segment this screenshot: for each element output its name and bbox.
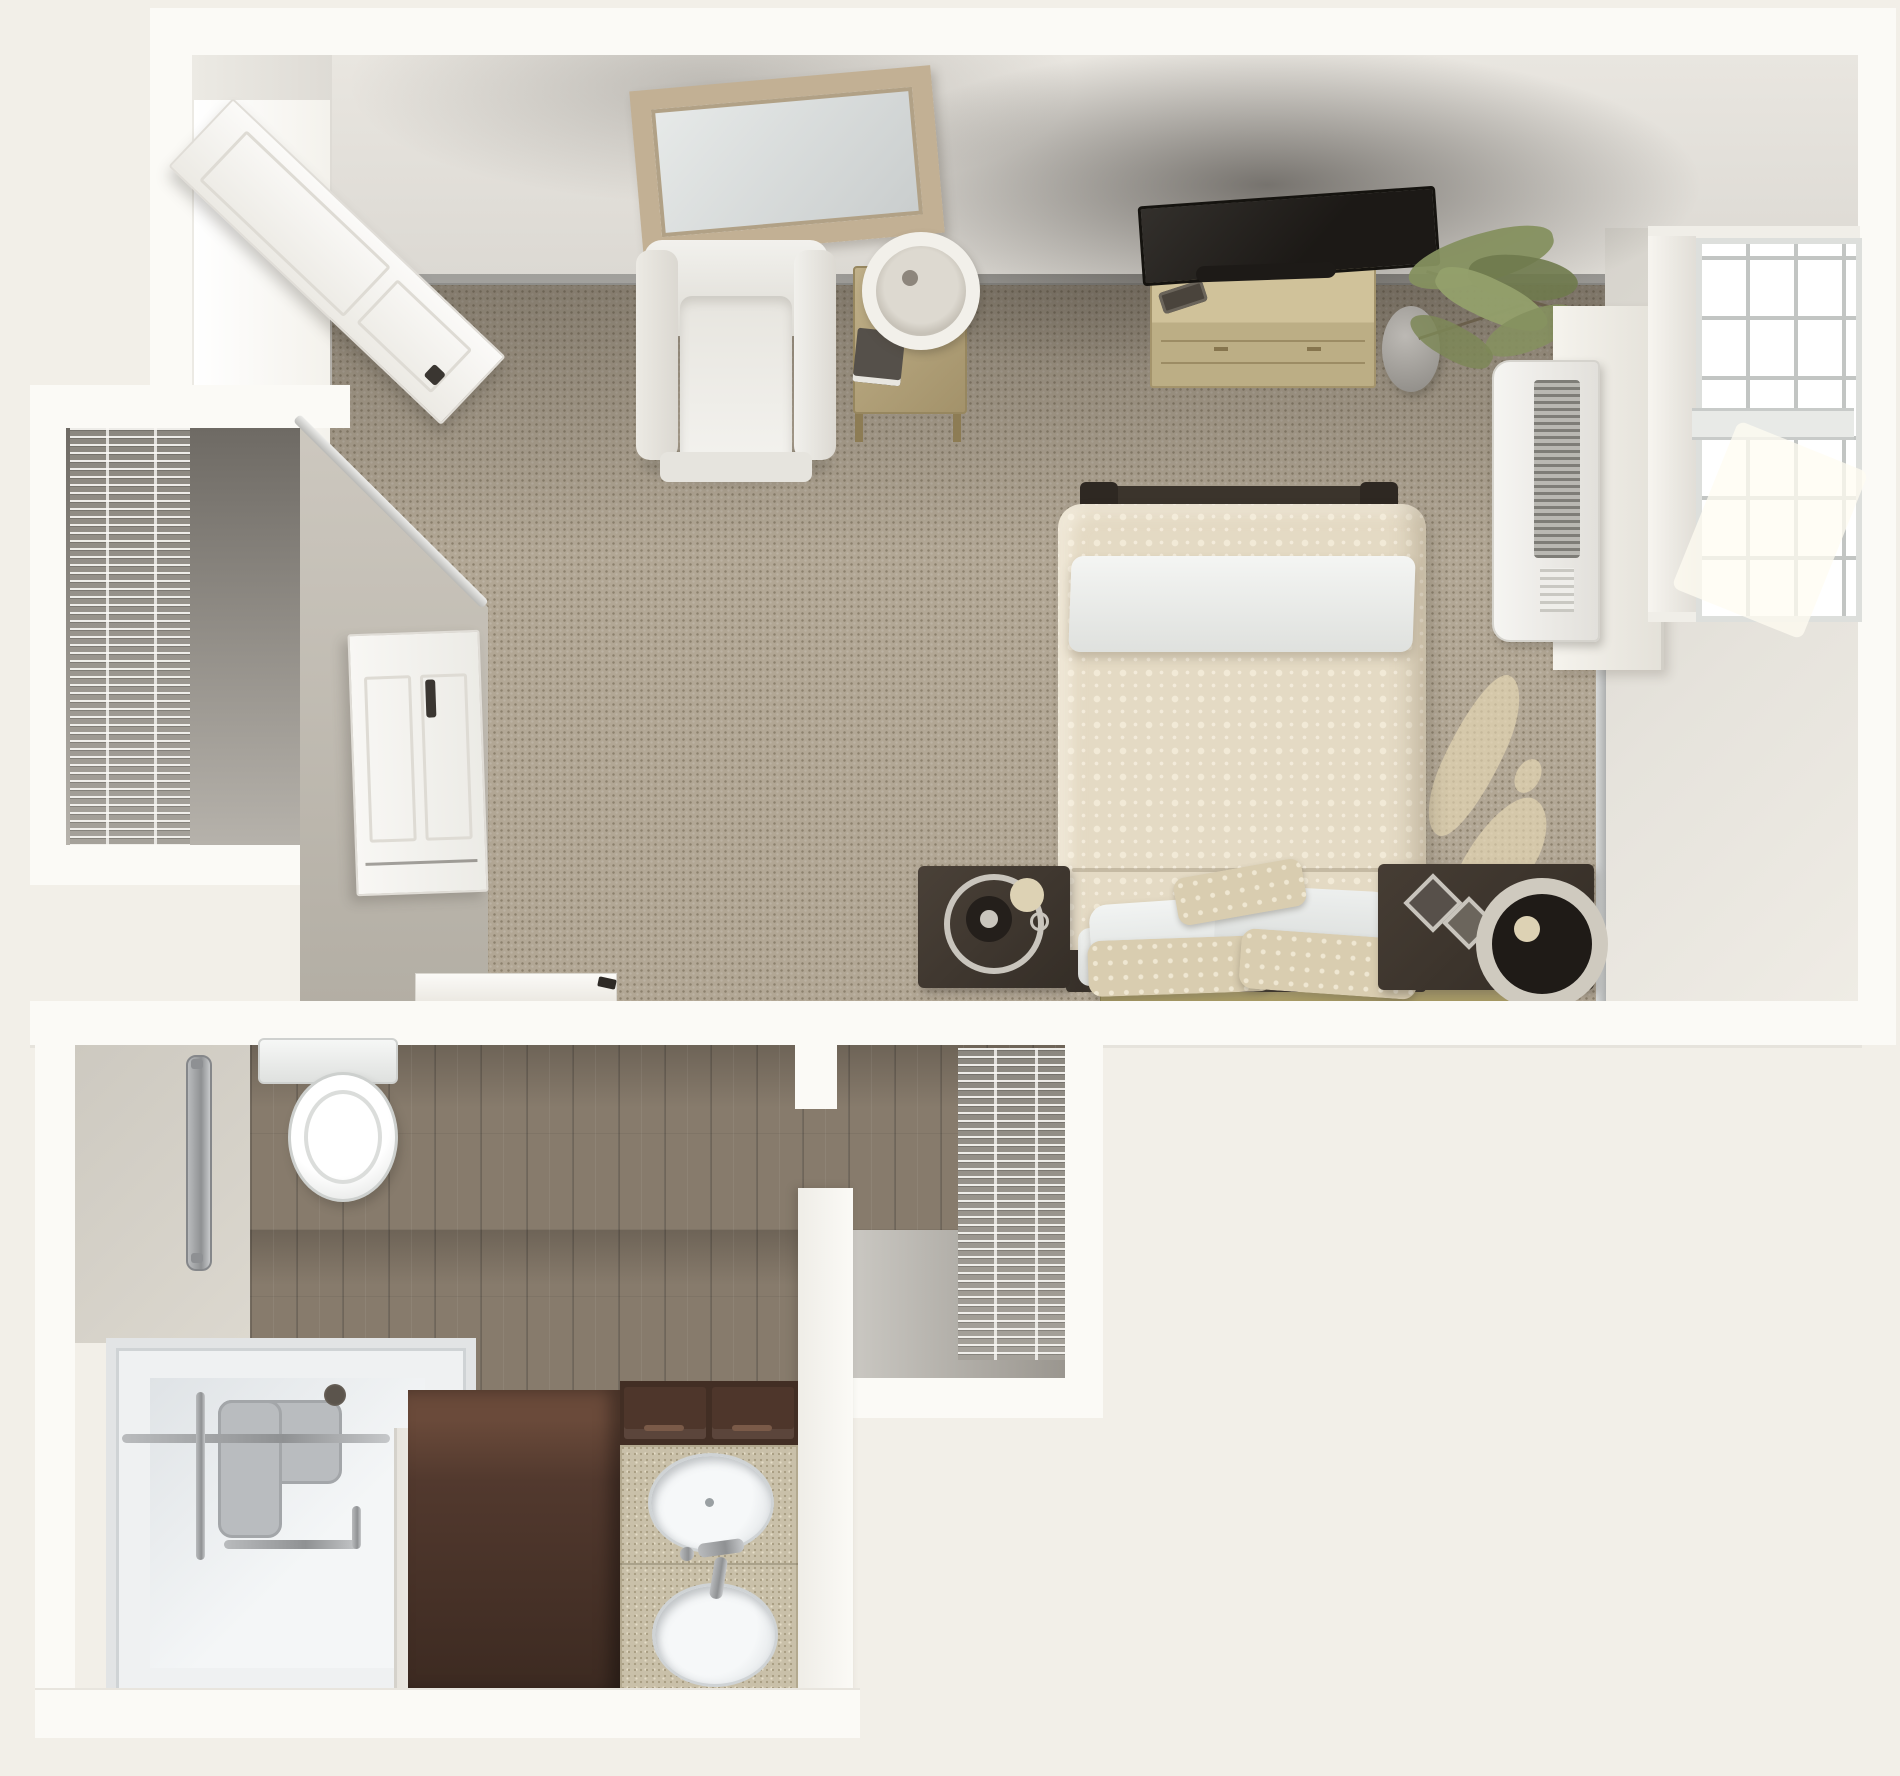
armchair-arm-left <box>636 250 678 460</box>
shower-drain-icon <box>324 1384 346 1406</box>
drawer-handle-icon <box>732 1425 772 1431</box>
grab-bar-standoff <box>191 1059 203 1069</box>
wire-rail <box>1035 1048 1038 1360</box>
table-lamp <box>862 232 980 350</box>
shower-grab-bar-horizontal <box>122 1434 390 1443</box>
outer-wall-right <box>1858 8 1896 1045</box>
ring-cream-disc-icon <box>1010 878 1044 912</box>
grab-bar-standoff <box>191 1253 203 1263</box>
nightstand-left <box>918 866 1070 988</box>
bathroom-bottom-wall <box>35 1688 860 1738</box>
ac-wall-unit <box>1492 360 1600 642</box>
grab-bar-vertical <box>186 1055 212 1271</box>
walkin-right-wall <box>1065 1045 1103 1418</box>
vanity-drawer-front <box>624 1387 706 1439</box>
outer-wall-top <box>150 8 1895 55</box>
barn-door-handle-icon <box>425 680 436 718</box>
vanity-drawer-bank <box>620 1381 798 1445</box>
bed-sheet-fold <box>1068 556 1415 652</box>
floor-plan-canvas <box>0 0 1900 1776</box>
vanity-drawer-front <box>712 1387 794 1439</box>
wire-rail <box>994 1048 997 1360</box>
ac-lower-slit-icon <box>1540 568 1574 612</box>
bathroom-outer-wall-left <box>35 1045 75 1736</box>
toilet-seat-line <box>304 1090 382 1184</box>
double-sink-counter <box>620 1445 798 1693</box>
sink-oval-upper <box>648 1453 774 1553</box>
shower-grab-bar-vertical <box>196 1392 205 1560</box>
sink-drain-icon <box>705 1498 714 1507</box>
drawer-handle-icon <box>644 1425 684 1431</box>
dresser-drawer-line <box>1161 362 1365 364</box>
ring-knob-icon <box>980 910 998 928</box>
faucet-handle-icon <box>680 1547 694 1561</box>
dresser-drawer-line <box>1161 340 1365 342</box>
wheel-decor-icon <box>1476 878 1608 1010</box>
shower-grab-bar-low <box>224 1540 360 1549</box>
wire-rail <box>154 428 157 845</box>
barn-door-panel <box>364 675 417 842</box>
counter-seam-line <box>620 1563 798 1565</box>
wire-rail <box>106 428 109 845</box>
nightstand-right <box>1378 864 1594 990</box>
shower-corner-seat-leg <box>218 1400 282 1538</box>
armchair-arm-right <box>794 250 836 460</box>
wall-shadow-overlay <box>192 55 1858 285</box>
armchair-seat-cushion <box>680 296 792 464</box>
ring-small-dot-icon <box>1030 912 1049 931</box>
dresser-handle-icon <box>1307 347 1321 351</box>
closet-left-wall <box>30 385 66 885</box>
wheel-hub-icon <box>1514 916 1540 942</box>
wall-stub <box>795 1045 837 1109</box>
armchair <box>636 232 836 488</box>
armchair-front-skirt <box>660 452 812 482</box>
dresser-handle-icon <box>1214 347 1228 351</box>
vanity-tall-cabinet <box>408 1390 620 1693</box>
walkin-bottom-wall <box>853 1378 1103 1418</box>
shower-grab-bar-low-return <box>352 1506 361 1549</box>
ac-vent-grille-icon <box>1534 380 1580 558</box>
toilet <box>258 1038 398 1198</box>
wall-mirror <box>629 65 944 259</box>
lamp-finial <box>902 270 918 286</box>
outer-wall-left-upper <box>150 8 192 390</box>
bathroom-left-wall-face <box>75 1045 250 1343</box>
walkin-wire-shelving <box>958 1048 1065 1360</box>
barn-door-roller-track <box>365 859 478 866</box>
barn-door <box>347 630 488 896</box>
bathroom-divider-wall <box>798 1188 853 1693</box>
closet-wire-shelving <box>70 428 190 845</box>
